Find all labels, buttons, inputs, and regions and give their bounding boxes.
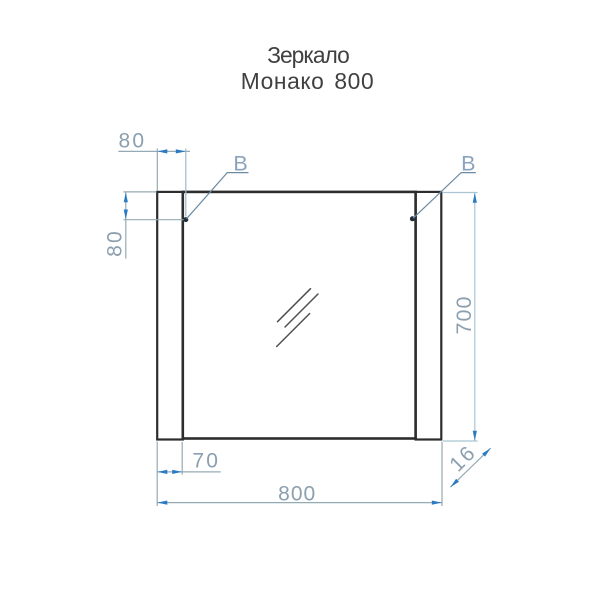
svg-text:Зеркало: Зеркало [267, 42, 349, 68]
svg-text:B: B [461, 152, 475, 176]
svg-text:80: 80 [119, 129, 147, 152]
svg-text:B: B [233, 152, 247, 176]
svg-text:80: 80 [103, 229, 126, 257]
svg-text:Монако 800: Монако 800 [241, 68, 374, 94]
svg-text:800: 800 [278, 482, 316, 505]
svg-text:16: 16 [445, 441, 481, 477]
svg-text:700: 700 [452, 296, 476, 335]
svg-text:70: 70 [192, 450, 220, 473]
